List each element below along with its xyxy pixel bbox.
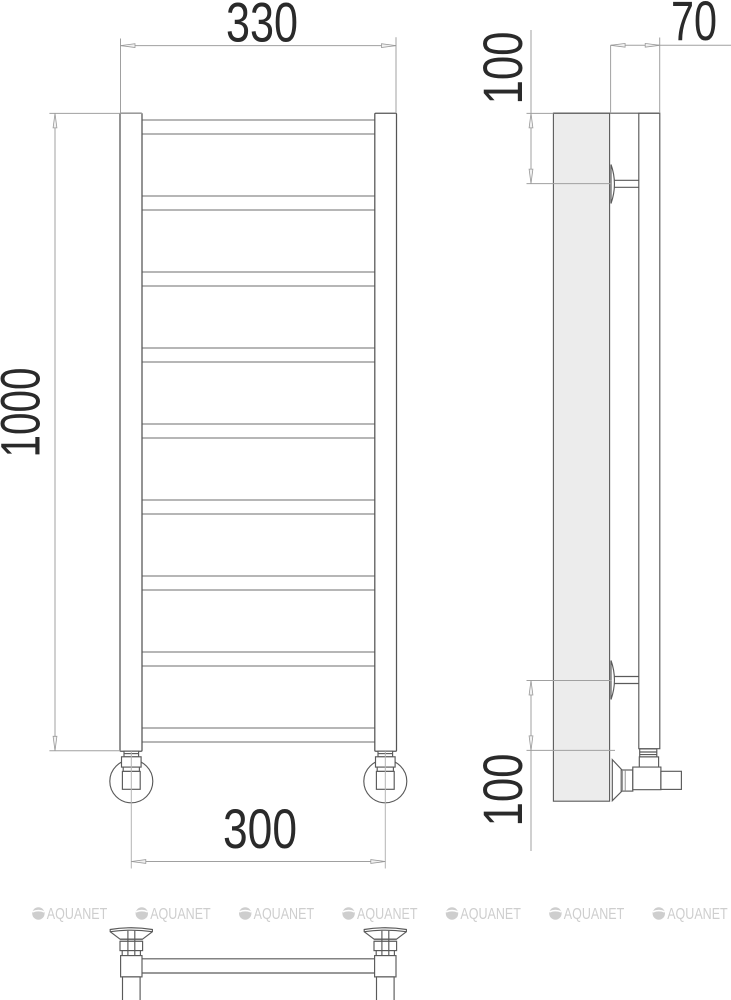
svg-text:100: 100 <box>471 32 534 105</box>
svg-text:1000: 1000 <box>0 368 52 458</box>
svg-text:AQUANET: AQUANET <box>47 906 108 923</box>
svg-text:70: 70 <box>671 0 717 52</box>
svg-text:330: 330 <box>226 0 298 54</box>
svg-text:300: 300 <box>223 797 297 860</box>
svg-text:100: 100 <box>471 754 534 827</box>
